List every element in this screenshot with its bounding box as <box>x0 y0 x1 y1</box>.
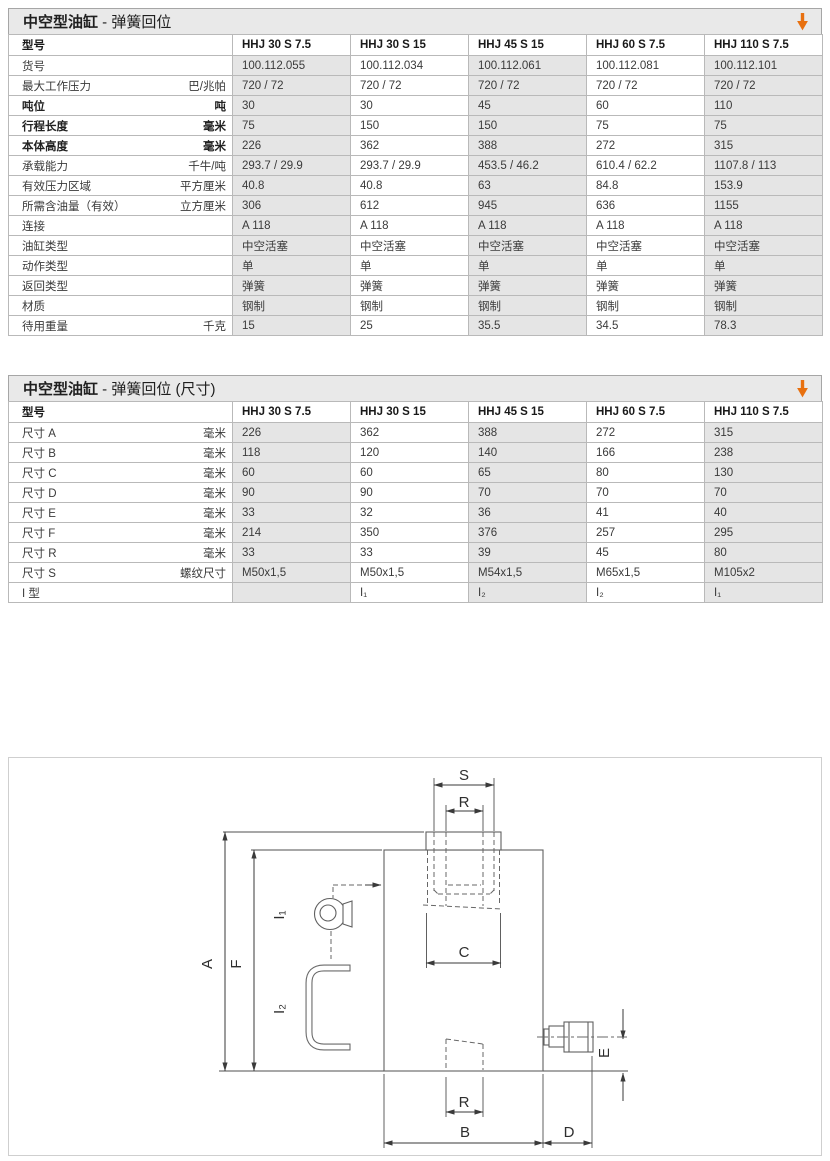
models-header-row: 型号HHJ 30 S 7.5HHJ 30 S 15HHJ 45 S 15HHJ … <box>9 35 823 56</box>
value-cell: 214 <box>233 523 351 543</box>
row-label-cell: 油缸类型 <box>9 236 233 256</box>
value-cell: 315 <box>705 423 823 443</box>
dim-label-i1: I₁ <box>271 910 288 919</box>
value-cell: 39 <box>469 543 587 563</box>
value-cell: 257 <box>587 523 705 543</box>
row-label-cell: I 型 <box>9 583 233 603</box>
table-row: 最大工作压力巴/兆帕720 / 72720 / 72720 / 72720 / … <box>9 76 823 96</box>
row-label: 待用重量 <box>22 321 68 333</box>
spec-section-title-main: 中空型油缸 <box>23 14 98 31</box>
value-cell: 295 <box>705 523 823 543</box>
table-row: 返回类型弹簧弹簧弹簧弹簧弹簧 <box>9 276 823 296</box>
value-cell: 钢制 <box>233 296 351 316</box>
table-row: 尺寸 R毫米3333394580 <box>9 543 823 563</box>
dimensions-section-title-sub: - 弹簧回位 (尺寸) <box>98 381 216 398</box>
value-cell: 118 <box>233 443 351 463</box>
models-header-label: 型号 <box>9 35 233 56</box>
row-unit: 螺纹尺寸 <box>180 565 226 581</box>
value-cell: 1155 <box>705 196 823 216</box>
table-row: I 型I₁I₂I₂I₁ <box>9 583 823 603</box>
value-cell: 166 <box>587 443 705 463</box>
value-cell: M54x1,5 <box>469 563 587 583</box>
dimensions-table: 型号HHJ 30 S 7.5HHJ 30 S 15HHJ 45 S 15HHJ … <box>8 401 823 603</box>
u-handle-outline <box>309 965 350 1051</box>
table-row: 尺寸 E毫米3332364140 <box>9 503 823 523</box>
value-cell: 226 <box>233 423 351 443</box>
table-row: 本体高度毫米226362388272315 <box>9 136 823 156</box>
row-label-cell: 本体高度毫米 <box>9 136 233 156</box>
row-unit: 毫米 <box>203 425 226 441</box>
model-header-cell: HHJ 45 S 15 <box>469 402 587 423</box>
value-cell: 100.112.081 <box>587 56 705 76</box>
dim-label-b: B <box>460 1124 470 1141</box>
value-cell: 1107.8 / 113 <box>705 156 823 176</box>
value-cell: 150 <box>469 116 587 136</box>
row-label-cell: 最大工作压力巴/兆帕 <box>9 76 233 96</box>
row-label-cell: 尺寸 C毫米 <box>9 463 233 483</box>
row-unit: 千克 <box>203 318 226 334</box>
value-cell: 636 <box>587 196 705 216</box>
value-cell: 33 <box>233 503 351 523</box>
spec-table-section: 中空型油缸 - 弹簧回位 型号HHJ 30 S 7.5HHJ 30 S 15HH… <box>8 8 822 336</box>
value-cell: 33 <box>233 543 351 563</box>
dim-label-e: E <box>596 1048 613 1058</box>
value-cell: 45 <box>469 96 587 116</box>
value-cell: 弹簧 <box>233 276 351 296</box>
value-cell: 140 <box>469 443 587 463</box>
value-cell: 226 <box>233 136 351 156</box>
spec-section-title-sub: - 弹簧回位 <box>98 14 171 31</box>
value-cell: 90 <box>351 483 469 503</box>
table-row: 尺寸 D毫米9090707070 <box>9 483 823 503</box>
row-label-cell: 尺寸 A毫米 <box>9 423 233 443</box>
row-label-cell: 返回类型 <box>9 276 233 296</box>
row-label: 所需含油量（有效） <box>22 201 126 213</box>
row-label: 货号 <box>22 61 45 73</box>
model-header-cell: HHJ 45 S 15 <box>469 35 587 56</box>
value-cell: 75 <box>587 116 705 136</box>
row-label-cell: 尺寸 F毫米 <box>9 523 233 543</box>
value-cell: 315 <box>705 136 823 156</box>
row-label: 尺寸 E <box>22 508 56 520</box>
value-cell: 中空活塞 <box>469 236 587 256</box>
table-row: 待用重量千克152535.534.578.3 <box>9 316 823 336</box>
table-row: 油缸类型中空活塞中空活塞中空活塞中空活塞中空活塞 <box>9 236 823 256</box>
dimensions-section-title: 中空型油缸 - 弹簧回位 (尺寸) <box>23 378 216 399</box>
row-unit: 毫米 <box>203 445 226 461</box>
value-cell: 弹簧 <box>705 276 823 296</box>
value-cell: 15 <box>233 316 351 336</box>
value-cell: 720 / 72 <box>233 76 351 96</box>
value-cell: 弹簧 <box>469 276 587 296</box>
row-label-cell: 承载能力千牛/吨 <box>9 156 233 176</box>
value-cell: A 118 <box>233 216 351 236</box>
row-unit: 毫米 <box>203 485 226 501</box>
value-cell: I₁ <box>705 583 823 603</box>
value-cell: 70 <box>587 483 705 503</box>
spec-section-title: 中空型油缸 - 弹簧回位 <box>23 11 171 32</box>
value-cell: 单 <box>587 256 705 276</box>
value-cell: 70 <box>705 483 823 503</box>
row-unit: 吨 <box>215 98 227 114</box>
value-cell: 41 <box>587 503 705 523</box>
value-cell: 306 <box>233 196 351 216</box>
value-cell: 钢制 <box>587 296 705 316</box>
dimensions-table-section: 中空型油缸 - 弹簧回位 (尺寸) 型号HHJ 30 S 7.5HHJ 30 S… <box>8 375 822 603</box>
value-cell: 720 / 72 <box>469 76 587 96</box>
row-label-cell: 吨位吨 <box>9 96 233 116</box>
dim-label-r-top: R <box>459 794 470 811</box>
value-cell: 中空活塞 <box>233 236 351 256</box>
value-cell: 388 <box>469 423 587 443</box>
value-cell: 120 <box>351 443 469 463</box>
row-label: 尺寸 A <box>22 428 56 440</box>
value-cell: 350 <box>351 523 469 543</box>
value-cell: 100.112.101 <box>705 56 823 76</box>
value-cell: M50x1,5 <box>233 563 351 583</box>
row-label-cell: 尺寸 S螺纹尺寸 <box>9 563 233 583</box>
row-label: I 型 <box>22 588 40 600</box>
value-cell: 36 <box>469 503 587 523</box>
row-label: 吨位 <box>22 101 45 113</box>
table-row: 尺寸 A毫米226362388272315 <box>9 423 823 443</box>
value-cell: 100.112.061 <box>469 56 587 76</box>
download-arrow-icon[interactable] <box>795 11 810 32</box>
value-cell: 80 <box>587 463 705 483</box>
value-cell: 293.7 / 29.9 <box>233 156 351 176</box>
value-cell: 中空活塞 <box>705 236 823 256</box>
value-cell <box>233 583 351 603</box>
row-label: 尺寸 S <box>22 568 56 580</box>
value-cell: I₁ <box>351 583 469 603</box>
value-cell: 40.8 <box>351 176 469 196</box>
model-header-cell: HHJ 110 S 7.5 <box>705 402 823 423</box>
row-unit: 毫米 <box>203 505 226 521</box>
table-row: 尺寸 S螺纹尺寸M50x1,5M50x1,5M54x1,5M65x1,5M105… <box>9 563 823 583</box>
dim-label-r-bottom: R <box>459 1094 470 1111</box>
cylinder-dimension-drawing: S R C A F I₁ I₂ E R B D <box>9 758 821 1155</box>
row-label: 有效压力区域 <box>22 181 91 193</box>
table-row: 材质钢制钢制钢制钢制钢制 <box>9 296 823 316</box>
dim-label-c: C <box>459 944 470 961</box>
row-label-cell: 货号 <box>9 56 233 76</box>
model-header-cell: HHJ 30 S 15 <box>351 35 469 56</box>
value-cell: 362 <box>351 423 469 443</box>
value-cell: M65x1,5 <box>587 563 705 583</box>
dim-label-i2: I₂ <box>271 1004 288 1014</box>
row-unit: 毫米 <box>203 525 226 541</box>
value-cell: 45 <box>587 543 705 563</box>
value-cell: 612 <box>351 196 469 216</box>
value-cell: 75 <box>233 116 351 136</box>
model-header-cell: HHJ 60 S 7.5 <box>587 35 705 56</box>
value-cell: 153.9 <box>705 176 823 196</box>
value-cell: 720 / 72 <box>587 76 705 96</box>
value-cell: 弹簧 <box>351 276 469 296</box>
model-header-cell: HHJ 30 S 15 <box>351 402 469 423</box>
row-unit: 毫米 <box>203 118 226 134</box>
spec-table-titlebar: 中空型油缸 - 弹簧回位 <box>8 8 822 34</box>
value-cell: 30 <box>233 96 351 116</box>
row-label-cell: 动作类型 <box>9 256 233 276</box>
spec-table: 型号HHJ 30 S 7.5HHJ 30 S 15HHJ 45 S 15HHJ … <box>8 34 823 336</box>
row-label: 本体高度 <box>22 141 68 153</box>
value-cell: A 118 <box>705 216 823 236</box>
row-label: 尺寸 F <box>22 528 55 540</box>
model-header-cell: HHJ 110 S 7.5 <box>705 35 823 56</box>
row-label-cell: 连接 <box>9 216 233 236</box>
value-cell: 80 <box>705 543 823 563</box>
row-label-cell: 尺寸 D毫米 <box>9 483 233 503</box>
value-cell: 单 <box>233 256 351 276</box>
value-cell: I₂ <box>587 583 705 603</box>
row-label-cell: 行程长度毫米 <box>9 116 233 136</box>
table-row: 货号100.112.055100.112.034100.112.061100.1… <box>9 56 823 76</box>
value-cell: 中空活塞 <box>587 236 705 256</box>
value-cell: 单 <box>469 256 587 276</box>
row-label-cell: 待用重量千克 <box>9 316 233 336</box>
value-cell: 60 <box>233 463 351 483</box>
value-cell: 单 <box>351 256 469 276</box>
row-label: 行程长度 <box>22 121 68 133</box>
dim-label-f: F <box>228 959 245 968</box>
value-cell: M50x1,5 <box>351 563 469 583</box>
value-cell: 272 <box>587 423 705 443</box>
row-unit: 平方厘米 <box>180 178 226 194</box>
value-cell: 945 <box>469 196 587 216</box>
value-cell: 25 <box>351 316 469 336</box>
value-cell: 40.8 <box>233 176 351 196</box>
models-header-label: 型号 <box>9 402 233 423</box>
value-cell: 钢制 <box>351 296 469 316</box>
value-cell: 63 <box>469 176 587 196</box>
row-label: 尺寸 D <box>22 488 57 500</box>
value-cell: 100.112.034 <box>351 56 469 76</box>
value-cell: 35.5 <box>469 316 587 336</box>
value-cell: 弹簧 <box>587 276 705 296</box>
model-header-cell: HHJ 60 S 7.5 <box>587 402 705 423</box>
value-cell: 60 <box>587 96 705 116</box>
table-row: 连接A 118A 118A 118A 118A 118 <box>9 216 823 236</box>
row-unit: 毫米 <box>203 465 226 481</box>
value-cell: 65 <box>469 463 587 483</box>
download-arrow-icon[interactable] <box>795 378 810 399</box>
value-cell: 130 <box>705 463 823 483</box>
value-cell: A 118 <box>351 216 469 236</box>
row-label: 材质 <box>22 301 45 313</box>
model-header-cell: HHJ 30 S 7.5 <box>233 402 351 423</box>
value-cell: A 118 <box>469 216 587 236</box>
dim-label-d: D <box>564 1124 575 1141</box>
row-unit: 毫米 <box>203 138 226 154</box>
models-header-row: 型号HHJ 30 S 7.5HHJ 30 S 15HHJ 45 S 15HHJ … <box>9 402 823 423</box>
value-cell: 32 <box>351 503 469 523</box>
dim-label-a: A <box>199 959 216 969</box>
dim-label-s: S <box>459 767 469 784</box>
value-cell: I₂ <box>469 583 587 603</box>
row-label: 连接 <box>22 221 45 233</box>
value-cell: 293.7 / 29.9 <box>351 156 469 176</box>
table-row: 行程长度毫米751501507575 <box>9 116 823 136</box>
value-cell: A 118 <box>587 216 705 236</box>
row-label-cell: 尺寸 B毫米 <box>9 443 233 463</box>
value-cell: M105x2 <box>705 563 823 583</box>
value-cell: 453.5 / 46.2 <box>469 156 587 176</box>
value-cell: 单 <box>705 256 823 276</box>
model-header-cell: HHJ 30 S 7.5 <box>233 35 351 56</box>
table-row: 承载能力千牛/吨293.7 / 29.9293.7 / 29.9453.5 / … <box>9 156 823 176</box>
row-label-cell: 材质 <box>9 296 233 316</box>
value-cell: 720 / 72 <box>351 76 469 96</box>
value-cell: 362 <box>351 136 469 156</box>
table-row: 动作类型单单单单单 <box>9 256 823 276</box>
dimensions-section-title-main: 中空型油缸 <box>23 381 98 398</box>
row-label-cell: 所需含油量（有效）立方厘米 <box>9 196 233 216</box>
value-cell: 110 <box>705 96 823 116</box>
dimension-diagram-panel: S R C A F I₁ I₂ E R B D <box>8 757 822 1156</box>
value-cell: 84.8 <box>587 176 705 196</box>
value-cell: 70 <box>469 483 587 503</box>
value-cell: 100.112.055 <box>233 56 351 76</box>
value-cell: 30 <box>351 96 469 116</box>
table-row: 有效压力区域平方厘米40.840.86384.8153.9 <box>9 176 823 196</box>
value-cell: 中空活塞 <box>351 236 469 256</box>
row-unit: 毫米 <box>203 545 226 561</box>
row-label: 动作类型 <box>22 261 68 273</box>
value-cell: 78.3 <box>705 316 823 336</box>
row-label-cell: 尺寸 E毫米 <box>9 503 233 523</box>
row-label: 最大工作压力 <box>22 81 91 93</box>
value-cell: 720 / 72 <box>705 76 823 96</box>
table-row: 吨位吨30304560110 <box>9 96 823 116</box>
value-cell: 40 <box>705 503 823 523</box>
row-unit: 巴/兆帕 <box>188 78 226 94</box>
table-row: 所需含油量（有效）立方厘米3066129456361155 <box>9 196 823 216</box>
row-unit: 千牛/吨 <box>188 158 226 174</box>
value-cell: 376 <box>469 523 587 543</box>
row-label-cell: 有效压力区域平方厘米 <box>9 176 233 196</box>
value-cell: 33 <box>351 543 469 563</box>
value-cell: 238 <box>705 443 823 463</box>
value-cell: 90 <box>233 483 351 503</box>
value-cell: 150 <box>351 116 469 136</box>
row-label: 返回类型 <box>22 281 68 293</box>
value-cell: 610.4 / 62.2 <box>587 156 705 176</box>
row-label: 尺寸 B <box>22 448 56 460</box>
value-cell: 60 <box>351 463 469 483</box>
row-label-cell: 尺寸 R毫米 <box>9 543 233 563</box>
value-cell: 钢制 <box>469 296 587 316</box>
value-cell: 272 <box>587 136 705 156</box>
value-cell: 34.5 <box>587 316 705 336</box>
dimensions-table-titlebar: 中空型油缸 - 弹簧回位 (尺寸) <box>8 375 822 401</box>
row-label: 承载能力 <box>22 161 68 173</box>
table-row: 尺寸 F毫米214350376257295 <box>9 523 823 543</box>
row-unit: 立方厘米 <box>180 198 226 214</box>
value-cell: 75 <box>705 116 823 136</box>
table-row: 尺寸 C毫米60606580130 <box>9 463 823 483</box>
table-row: 尺寸 B毫米118120140166238 <box>9 443 823 463</box>
row-label: 尺寸 C <box>22 468 57 480</box>
value-cell: 钢制 <box>705 296 823 316</box>
row-label: 油缸类型 <box>22 241 68 253</box>
cylinder-body-outline <box>315 832 594 1071</box>
value-cell: 388 <box>469 136 587 156</box>
datasheet-page: 中空型油缸 - 弹簧回位 型号HHJ 30 S 7.5HHJ 30 S 15HH… <box>0 0 830 1161</box>
row-label: 尺寸 R <box>22 548 57 560</box>
